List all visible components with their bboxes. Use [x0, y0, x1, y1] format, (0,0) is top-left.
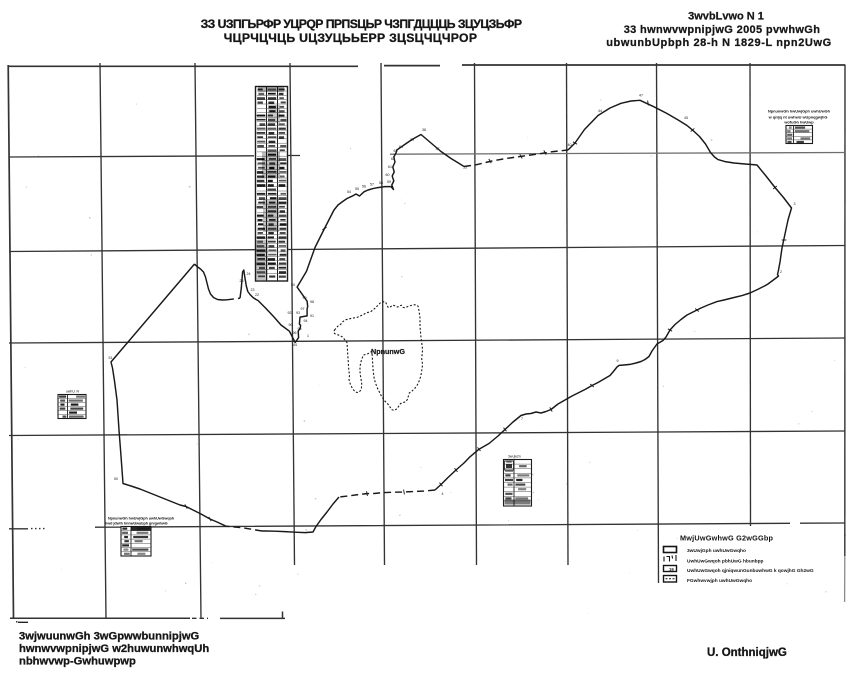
svg-text:58: 58	[379, 181, 383, 185]
svg-text:45: 45	[684, 116, 688, 120]
svg-text:38: 38	[422, 128, 426, 132]
svg-text:U. OnthniqjwG: U. OnthniqjwG	[707, 647, 787, 659]
svg-text:44: 44	[598, 109, 602, 113]
svg-text:24: 24	[247, 272, 251, 276]
svg-text:nbhwvwp-Gwhuwpwp: nbhwvwp-Gwhuwpwp	[19, 656, 136, 668]
svg-text:59: 59	[387, 180, 391, 184]
svg-text:98: 98	[310, 300, 314, 304]
svg-text:2: 2	[780, 270, 782, 274]
svg-text:99: 99	[303, 296, 307, 300]
svg-text:ubwunbUpbph 28-h N 1829-L npn2: ubwunbUpbph 28-h N 1829-L npn2UwG	[606, 37, 832, 49]
svg-text:FGwhwvwjph uwhUwGwqho: FGwhwvwjph uwhUwGwqho	[687, 578, 752, 584]
svg-text:33 hwnwvwpnipjwG 2005 pvwhwGh: 33 hwnwvwpnipjwG 2005 pvwhwGh	[624, 24, 821, 36]
svg-text:wofuGh hwUwp: wofuGh hwUwp	[783, 120, 814, 125]
svg-text:50: 50	[291, 283, 295, 287]
svg-text:47: 47	[639, 94, 643, 98]
svg-text:64: 64	[399, 145, 403, 149]
svg-text:ЗЗ UЗПГЬРФР УЦРQР ПРПSЦЬР ЧЗПГ: ЗЗ UЗПГЬРФР УЦРQР ПРПSЦЬР ЧЗПГДЦЦЦЬ ЗЦУЦ…	[201, 17, 522, 31]
svg-text:37: 37	[436, 147, 440, 151]
svg-text:90: 90	[289, 323, 293, 327]
svg-text:NpnunwGh hwUwjGph uwhUwGwqoh: NpnunwGh hwUwjGph uwhUwGwqoh	[108, 517, 175, 521]
svg-text:uwhU. N: uwhU. N	[66, 390, 80, 394]
svg-text:3: 3	[794, 202, 796, 206]
svg-text:3wvbLvwo N 1: 3wvbLvwo N 1	[688, 11, 764, 23]
svg-text:ЧЦРЧЦЧЦЬ UЦЗУЦЬЬЕРР ЗЦSЦЧЦЧР: ЧЦРЧЦЧЦЬ UЦЗУЦЬЬЕРР ЗЦSЦЧЦЧРОР	[224, 31, 478, 45]
svg-text:63: 63	[394, 149, 398, 153]
svg-text:95: 95	[298, 327, 302, 331]
svg-text:4: 4	[442, 492, 444, 496]
svg-text:91: 91	[310, 314, 314, 318]
svg-text:19: 19	[669, 567, 674, 572]
svg-text:25: 25	[240, 279, 244, 283]
svg-text:57: 57	[370, 183, 374, 187]
svg-text:hwnwvwpnipjwG w2huwunwhwqUh: hwnwvwpnipjwG w2huwunwhwqUh	[19, 643, 209, 655]
svg-text:1: 1	[307, 334, 309, 338]
svg-text:54: 54	[347, 190, 351, 194]
svg-text:9: 9	[617, 359, 619, 363]
svg-text:40: 40	[568, 143, 572, 147]
svg-text:7: 7	[521, 417, 523, 421]
svg-text:62: 62	[391, 157, 395, 161]
svg-text:3wUwjGph uwhUwGwqho: 3wUwjGph uwhUwGwqho	[687, 548, 746, 554]
svg-text:35: 35	[463, 166, 467, 170]
svg-text:MwjUwGwhwG G2wGGbp: MwjUwGwhwG G2wGGbp	[680, 534, 774, 543]
svg-text:56: 56	[362, 185, 366, 189]
svg-text:22: 22	[255, 293, 259, 297]
svg-text:97: 97	[301, 307, 305, 311]
svg-text:60: 60	[386, 173, 390, 177]
svg-text:NpnunwG: NpnunwG	[371, 347, 405, 356]
svg-text:96: 96	[293, 331, 297, 335]
svg-text:UwhUwGwqoh pbhUwG hbunbpp: UwhUwGwqoh pbhUwG hbunbpp	[687, 559, 764, 565]
svg-text:39: 39	[410, 138, 414, 142]
svg-text:50: 50	[114, 477, 118, 481]
svg-text:51: 51	[109, 356, 113, 360]
svg-text:92: 92	[288, 311, 292, 315]
svg-text:93: 93	[296, 311, 300, 315]
svg-text:3wվw2n: 3wվw2n	[508, 455, 521, 459]
svg-text:44: 44	[293, 343, 297, 347]
svg-text:94: 94	[304, 319, 308, 323]
svg-text:55: 55	[355, 187, 359, 191]
svg-text:UwhUwGwqoh qjniqwunGunbuwhwG k: UwhUwGwqoh qjniqwunGunbuwhwG k qowjhG Gh…	[687, 568, 814, 574]
svg-text:hwd jdwlh hnnwUwubph gnigwhwG: hwd jdwlh hnnwUwubph gnigwhwG	[105, 522, 168, 526]
svg-text:3wjwuunwGh 3wGpwwbunnipjwG: 3wjwuunwGh 3wGpwwbunnipjwG	[19, 631, 200, 643]
svg-text:23: 23	[251, 288, 255, 292]
svg-text:NpnunwGh hwUwjGph uwhUwGh: NpnunwGh hwUwjGph uwhUwGh	[768, 109, 831, 114]
svg-text:61: 61	[388, 165, 392, 169]
